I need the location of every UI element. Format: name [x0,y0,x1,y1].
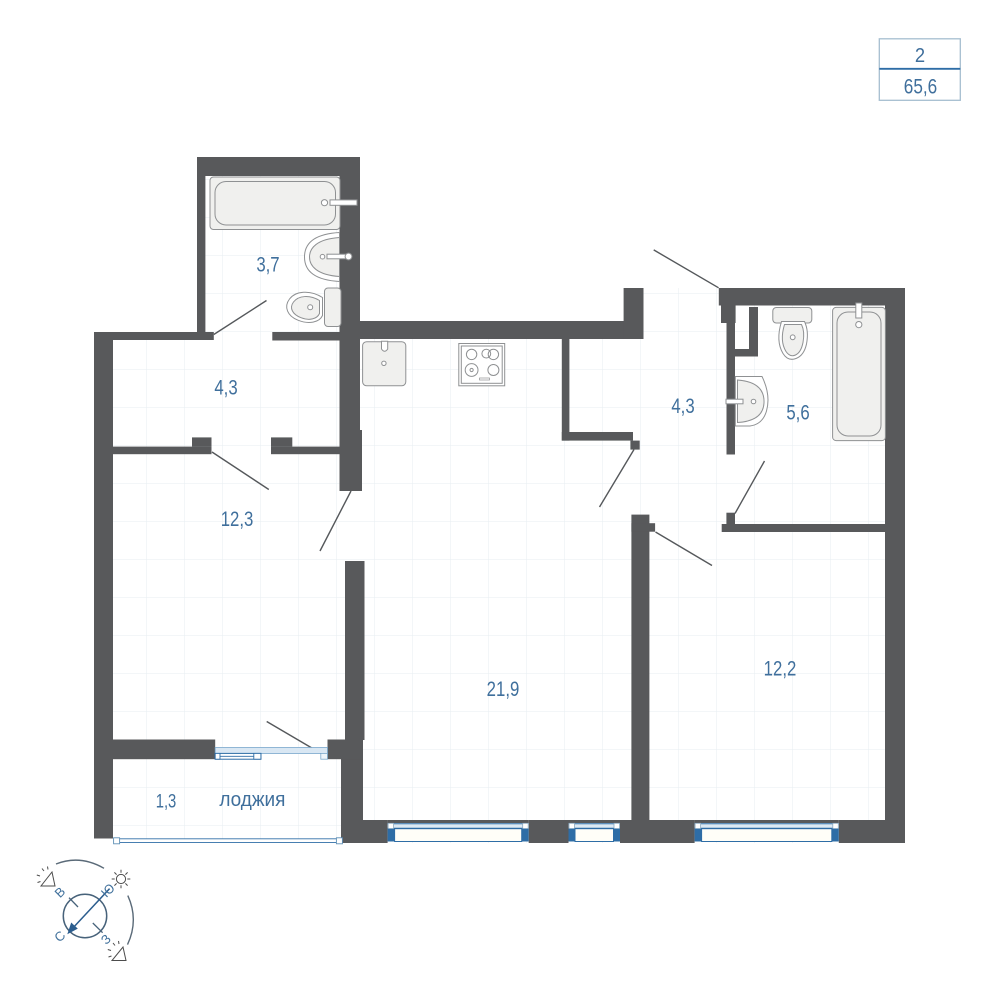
svg-text:4,3: 4,3 [214,377,237,400]
svg-text:4,3: 4,3 [671,395,694,418]
svg-text:З: З [98,931,114,947]
svg-text:21,9: 21,9 [487,678,520,701]
svg-text:2: 2 [915,45,925,67]
svg-text:С: С [51,928,68,945]
svg-text:12,3: 12,3 [221,508,254,531]
svg-text:1,3: 1,3 [156,791,177,812]
svg-text:3,7: 3,7 [256,254,279,277]
svg-text:65,6: 65,6 [904,75,937,99]
svg-text:лоджия: лоджия [219,788,285,811]
svg-text:12,2: 12,2 [764,658,797,681]
svg-text:5,6: 5,6 [786,402,809,425]
